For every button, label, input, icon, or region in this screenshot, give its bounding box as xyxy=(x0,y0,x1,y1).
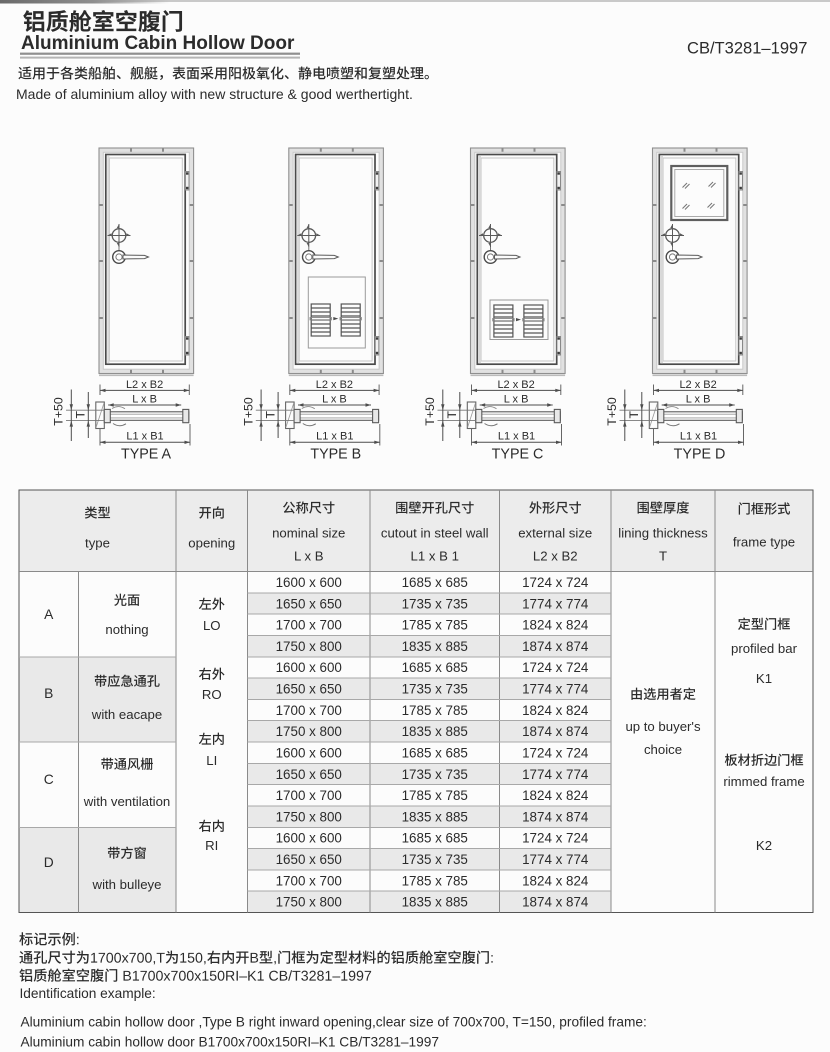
svg-text:1824 x 824: 1824 x 824 xyxy=(522,873,589,888)
svg-text:L x B: L x B xyxy=(294,549,324,564)
svg-text:L2 x B2: L2 x B2 xyxy=(497,379,534,391)
svg-text:B: B xyxy=(44,686,53,701)
svg-text:L2 x B2: L2 x B2 xyxy=(316,379,353,391)
svg-text:1785 x 785: 1785 x 785 xyxy=(402,703,468,718)
svg-text:T: T xyxy=(627,411,641,419)
svg-text:1774 x 774: 1774 x 774 xyxy=(522,596,589,611)
svg-text:Aluminium cabin hollow door ,T: Aluminium cabin hollow door ,Type B righ… xyxy=(21,1015,647,1030)
svg-text:1700 x 700: 1700 x 700 xyxy=(276,703,342,718)
svg-text:frame type: frame type xyxy=(733,535,795,550)
svg-text:1735 x 735: 1735 x 735 xyxy=(402,682,468,697)
svg-text:L x B: L x B xyxy=(322,394,347,406)
svg-text:1774 x 774: 1774 x 774 xyxy=(522,682,589,697)
svg-text:1600 x 600: 1600 x 600 xyxy=(276,575,342,590)
svg-text:1650 x 650: 1650 x 650 xyxy=(276,767,342,782)
svg-text:L x B: L x B xyxy=(686,394,711,406)
svg-text:1874 x 874: 1874 x 874 xyxy=(522,895,589,910)
svg-text:1700 x 700: 1700 x 700 xyxy=(276,618,342,633)
svg-text:L2 x B2: L2 x B2 xyxy=(679,379,716,391)
svg-text:LO: LO xyxy=(203,618,221,633)
svg-text:1735 x 735: 1735 x 735 xyxy=(402,767,468,782)
svg-text:choice: choice xyxy=(644,742,682,757)
svg-text:1874 x 874: 1874 x 874 xyxy=(522,724,589,739)
svg-text:RO: RO xyxy=(202,687,222,702)
svg-text:1785 x 785: 1785 x 785 xyxy=(402,618,468,633)
svg-text:LI: LI xyxy=(206,753,217,768)
svg-text:1724 x 724: 1724 x 724 xyxy=(522,831,589,846)
svg-text:type: type xyxy=(85,536,110,551)
svg-text:1735 x 735: 1735 x 735 xyxy=(402,852,468,867)
svg-text:CB/T3281–1997: CB/T3281–1997 xyxy=(687,39,807,58)
svg-text:external size: external size xyxy=(518,526,592,541)
svg-text:1750 x 800: 1750 x 800 xyxy=(276,809,342,824)
svg-text:with bulleye: with bulleye xyxy=(92,877,162,892)
svg-text:1824 x 824: 1824 x 824 xyxy=(522,703,589,718)
svg-text:Aluminium Cabin Hollow Door: Aluminium Cabin Hollow Door xyxy=(21,33,295,54)
svg-text:L1 x B1: L1 x B1 xyxy=(498,431,535,443)
svg-text:L1 x B1: L1 x B1 xyxy=(316,431,353,443)
svg-text:K1: K1 xyxy=(756,671,772,686)
svg-text:Aluminium cabin hollow door B1: Aluminium cabin hollow door B1700x700x15… xyxy=(21,1035,440,1050)
svg-text:1750 x 800: 1750 x 800 xyxy=(276,724,342,739)
svg-text:1650 x 650: 1650 x 650 xyxy=(276,596,342,611)
svg-text:nominal size: nominal size xyxy=(272,526,345,541)
svg-text:T+50: T+50 xyxy=(605,397,619,426)
svg-text:profiled bar: profiled bar xyxy=(731,641,798,656)
svg-text:cutout in steel wall: cutout in steel wall xyxy=(381,526,489,541)
svg-text:1874 x 874: 1874 x 874 xyxy=(522,809,589,824)
svg-text:Made of aluminium alloy with n: Made of aluminium alloy with new structu… xyxy=(16,86,413,102)
svg-text:L x B: L x B xyxy=(504,394,529,406)
svg-text:1835 x 885: 1835 x 885 xyxy=(402,895,468,910)
svg-text:L2 x B2: L2 x B2 xyxy=(533,549,578,564)
svg-text:TYPE C: TYPE C xyxy=(492,447,544,463)
svg-text:1824 x 824: 1824 x 824 xyxy=(522,788,589,803)
svg-text:K2: K2 xyxy=(756,838,772,853)
svg-text:T: T xyxy=(263,411,277,419)
svg-text:1750 x 800: 1750 x 800 xyxy=(276,895,342,910)
svg-text:1750 x 800: 1750 x 800 xyxy=(276,639,342,654)
svg-text:T+50: T+50 xyxy=(241,397,255,426)
svg-text:C: C xyxy=(44,772,54,787)
svg-text:1774 x 774: 1774 x 774 xyxy=(522,852,589,867)
svg-text:rimmed frame: rimmed frame xyxy=(723,774,804,789)
svg-text:1700 x 700: 1700 x 700 xyxy=(276,788,342,803)
svg-text:1724 x 724: 1724 x 724 xyxy=(522,660,589,675)
svg-text:1724 x 724: 1724 x 724 xyxy=(522,745,589,760)
svg-text:Identification example:: Identification example: xyxy=(20,986,156,1001)
svg-text:1724 x 724: 1724 x 724 xyxy=(522,575,589,590)
svg-text:up to buyer's: up to buyer's xyxy=(625,719,701,734)
svg-text:RI: RI xyxy=(205,838,218,853)
svg-text:T: T xyxy=(74,411,88,419)
svg-text:1650 x 650: 1650 x 650 xyxy=(276,852,342,867)
svg-text:1785 x 785: 1785 x 785 xyxy=(402,873,468,888)
svg-text:1835 x 885: 1835 x 885 xyxy=(402,809,468,824)
svg-text:with ventilation: with ventilation xyxy=(83,794,171,809)
svg-text:nothing: nothing xyxy=(105,622,148,637)
svg-text:1835 x 885: 1835 x 885 xyxy=(402,724,468,739)
svg-text:L2 x B2: L2 x B2 xyxy=(126,379,163,391)
svg-text:T: T xyxy=(445,411,459,419)
svg-text:1685 x 685: 1685 x 685 xyxy=(402,575,468,590)
svg-text:1685 x 685: 1685 x 685 xyxy=(402,745,468,760)
svg-text:T+50: T+50 xyxy=(423,397,437,426)
svg-text:lining thickness: lining thickness xyxy=(618,526,708,541)
svg-text:A: A xyxy=(44,607,54,622)
svg-text:1600 x 600: 1600 x 600 xyxy=(276,831,342,846)
svg-text:L x B: L x B xyxy=(132,394,157,406)
svg-text:opening: opening xyxy=(188,536,235,551)
svg-text:1735 x 735: 1735 x 735 xyxy=(402,596,468,611)
svg-text:D: D xyxy=(44,855,54,870)
svg-text:T+50: T+50 xyxy=(52,397,66,426)
svg-text:L1 x B1: L1 x B1 xyxy=(126,431,163,443)
svg-text:1824 x 824: 1824 x 824 xyxy=(522,618,589,633)
svg-text:TYPE B: TYPE B xyxy=(310,447,361,463)
svg-text:TYPE D: TYPE D xyxy=(674,447,726,463)
svg-text:1650 x 650: 1650 x 650 xyxy=(276,682,342,697)
svg-text:1700 x 700: 1700 x 700 xyxy=(276,873,342,888)
svg-text:1600 x 600: 1600 x 600 xyxy=(276,660,342,675)
svg-text:L1 x B 1: L1 x B 1 xyxy=(411,549,459,564)
svg-text:TYPE A: TYPE A xyxy=(121,447,172,463)
svg-text:1685 x 685: 1685 x 685 xyxy=(402,831,468,846)
svg-text:T: T xyxy=(659,549,667,564)
svg-text:1600 x 600: 1600 x 600 xyxy=(276,745,342,760)
svg-text:1874 x 874: 1874 x 874 xyxy=(522,639,589,654)
svg-text:1685 x 685: 1685 x 685 xyxy=(402,660,468,675)
svg-text:1785 x 785: 1785 x 785 xyxy=(402,788,468,803)
svg-text:L1 x B1: L1 x B1 xyxy=(680,431,717,443)
svg-text:with eacape: with eacape xyxy=(91,707,162,722)
svg-text:1835 x 885: 1835 x 885 xyxy=(402,639,468,654)
svg-text:1774 x 774: 1774 x 774 xyxy=(522,767,589,782)
